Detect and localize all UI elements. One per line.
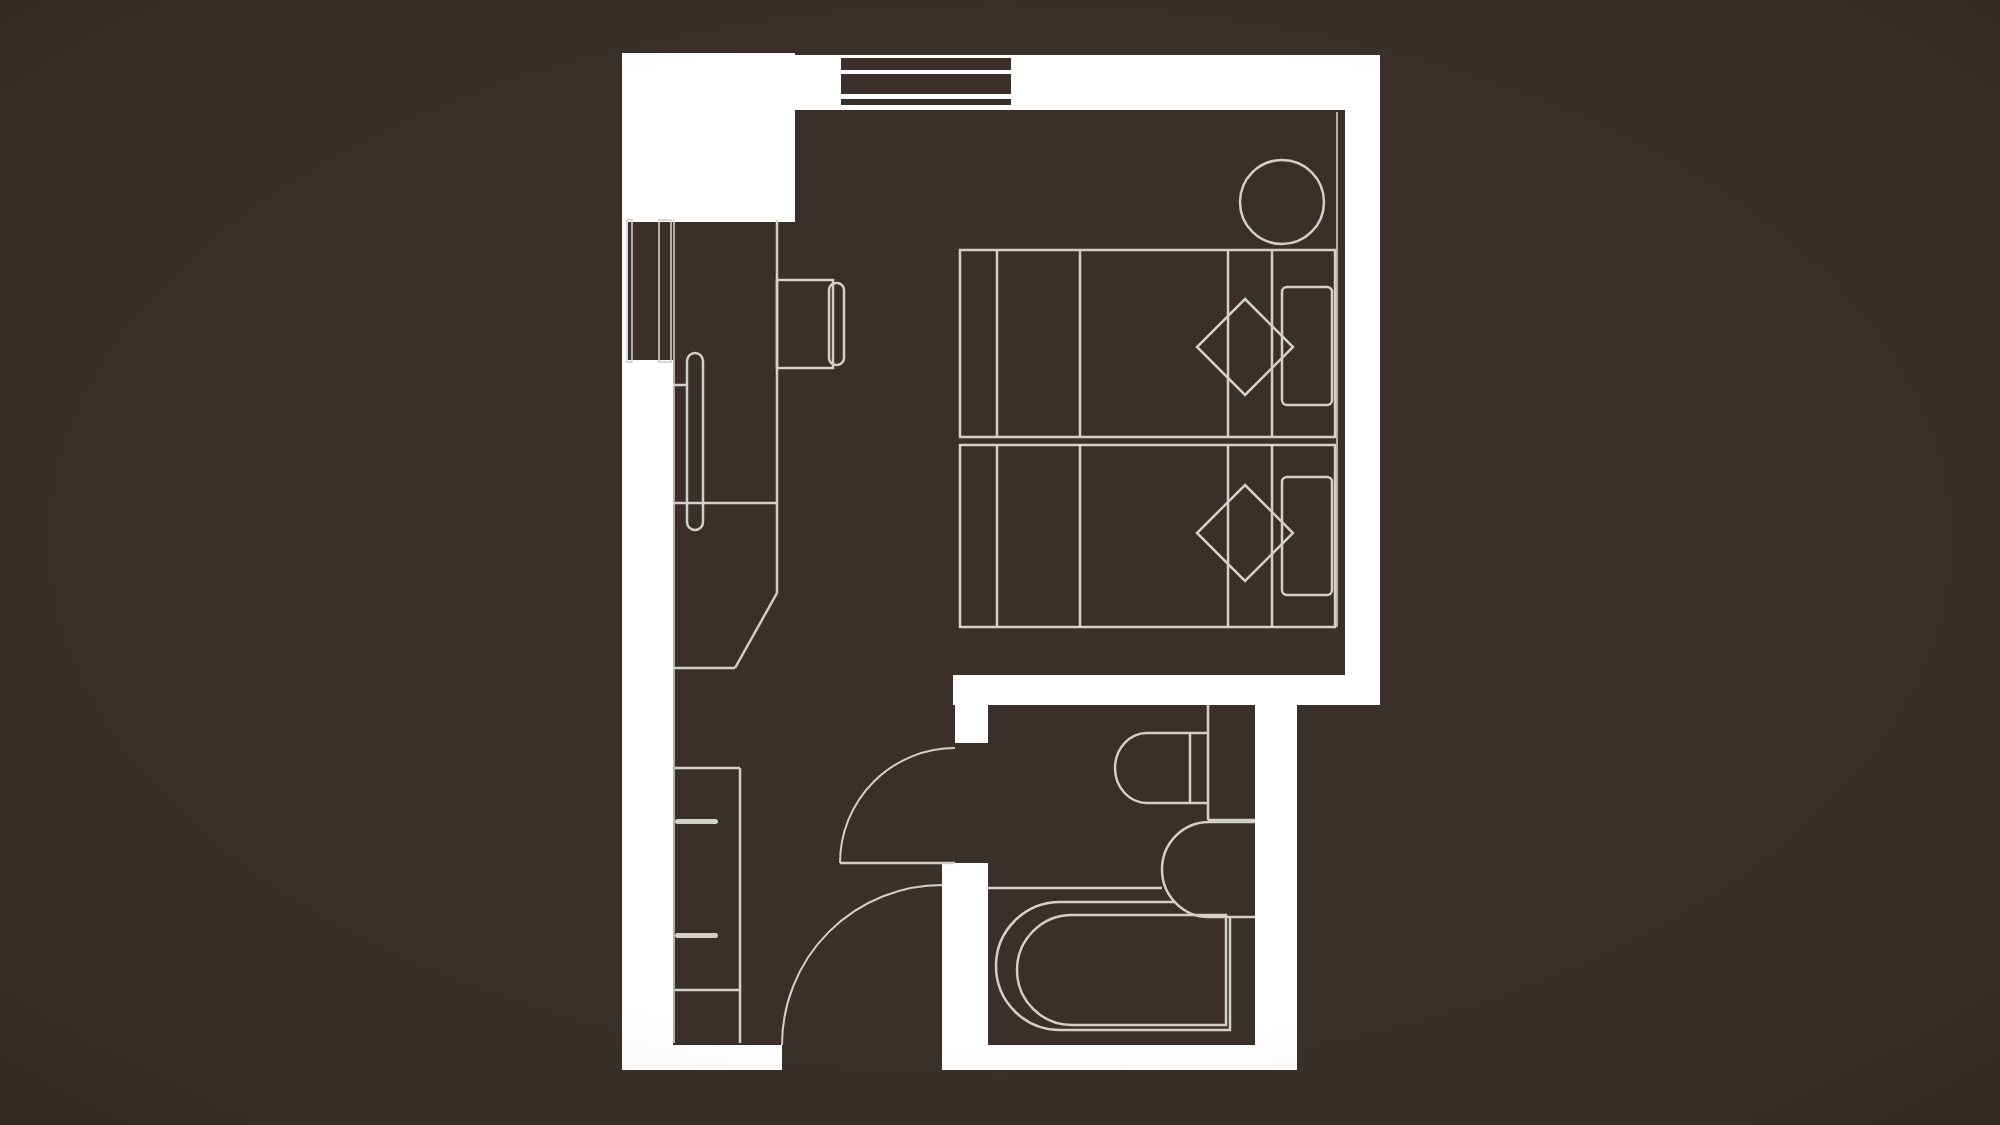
vignette-overlay	[0, 0, 2000, 1125]
floor-plan-svg	[0, 0, 2000, 1125]
floor-plan-stage	[0, 0, 2000, 1125]
